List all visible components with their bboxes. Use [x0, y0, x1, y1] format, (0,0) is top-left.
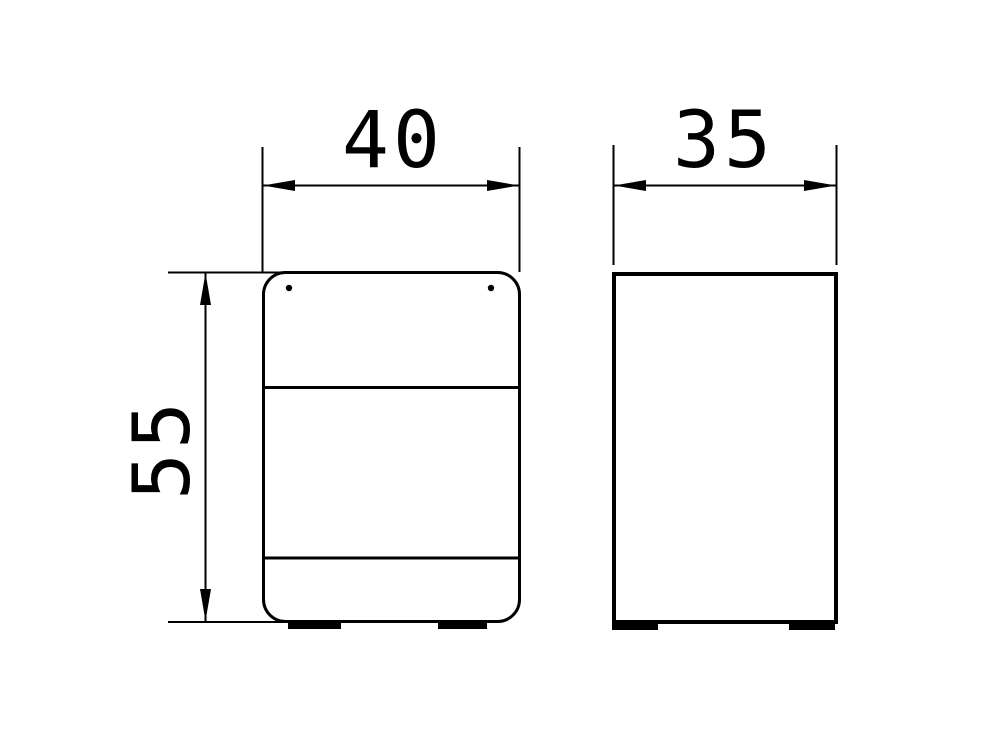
- dimension-height-label: 55: [118, 398, 208, 500]
- dimension-depth: 35: [614, 96, 837, 265]
- front-view-outline: [264, 273, 520, 622]
- side-view: [612, 274, 836, 630]
- side-view-outline: [614, 274, 836, 622]
- arrowhead-down-icon: [200, 589, 211, 621]
- side-view-foot-right: [789, 621, 835, 630]
- arrowhead-right-icon: [804, 180, 836, 191]
- mounting-hole-right: [488, 285, 494, 291]
- dimension-width: 40: [263, 96, 520, 272]
- technical-drawing-svg: 40 35 55: [0, 0, 1000, 753]
- front-view-foot-right: [438, 620, 487, 629]
- technical-drawing-canvas: 40 35 55: [0, 0, 1000, 753]
- arrowhead-right-icon: [487, 180, 519, 191]
- dimension-depth-label: 35: [673, 96, 775, 186]
- arrowhead-left-icon: [263, 180, 295, 191]
- arrowhead-left-icon: [614, 180, 646, 191]
- mounting-hole-left: [286, 285, 292, 291]
- arrowhead-up-icon: [200, 273, 211, 305]
- dimension-width-label: 40: [342, 96, 444, 186]
- front-view: [264, 273, 520, 630]
- dimension-height: 55: [118, 273, 298, 623]
- side-view-foot-left: [612, 621, 658, 630]
